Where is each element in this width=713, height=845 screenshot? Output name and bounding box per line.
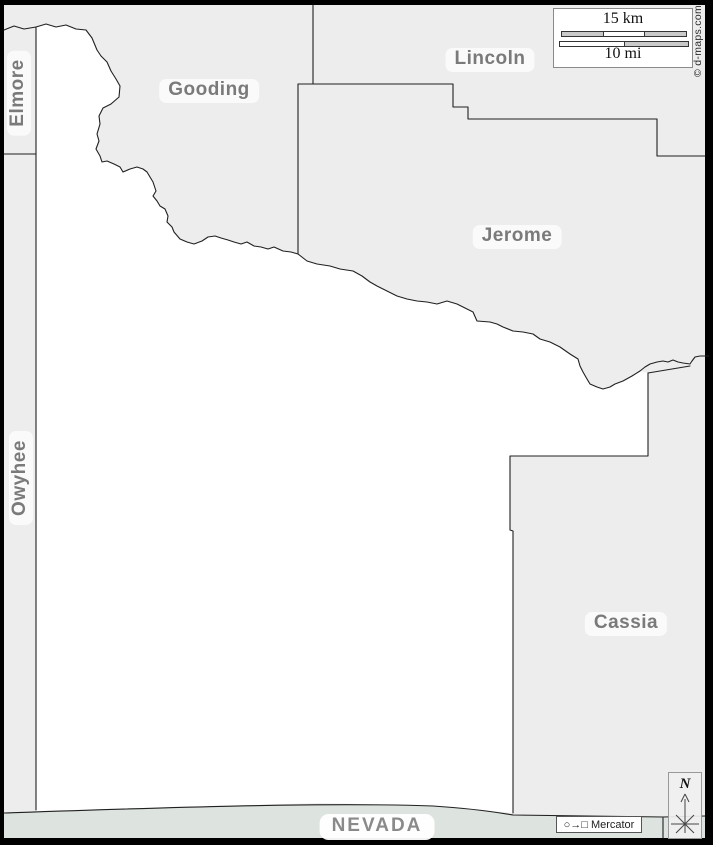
- map-page: Gooding Lincoln Jerome Cassia Elmore Owy…: [0, 0, 713, 845]
- scale-km-segment-2: [603, 32, 644, 36]
- projection-box: ○→□ Mercator: [556, 816, 642, 833]
- elmore-county-label: Elmore: [7, 50, 31, 135]
- scale-km-segment-3: [645, 32, 686, 36]
- scale-km-segment-1: [562, 32, 603, 36]
- copyright-credit: © d-maps.com: [692, 5, 704, 77]
- nevada-state-label: NEVADA: [320, 814, 435, 840]
- owyhee-county-label: Owyhee: [9, 431, 33, 525]
- scale-km-label: 15 km: [554, 10, 692, 28]
- scale-bar-km: [561, 31, 687, 37]
- scale-box: 15 km 10 mi: [553, 8, 693, 68]
- scale-mi-label: 10 mi: [554, 45, 692, 63]
- compass-rose-icon: [669, 793, 701, 837]
- lincoln-county-label: Lincoln: [445, 48, 534, 72]
- county-map-canvas: [0, 0, 713, 845]
- cassia-county-label: Cassia: [585, 612, 667, 636]
- gooding-county-label: Gooding: [159, 79, 259, 103]
- projection-symbols-icon: ○→□: [564, 819, 588, 831]
- compass-box: N: [668, 772, 702, 839]
- projection-name: Mercator: [591, 819, 634, 831]
- jerome-county-label: Jerome: [473, 225, 562, 249]
- compass-north-label: N: [669, 776, 701, 793]
